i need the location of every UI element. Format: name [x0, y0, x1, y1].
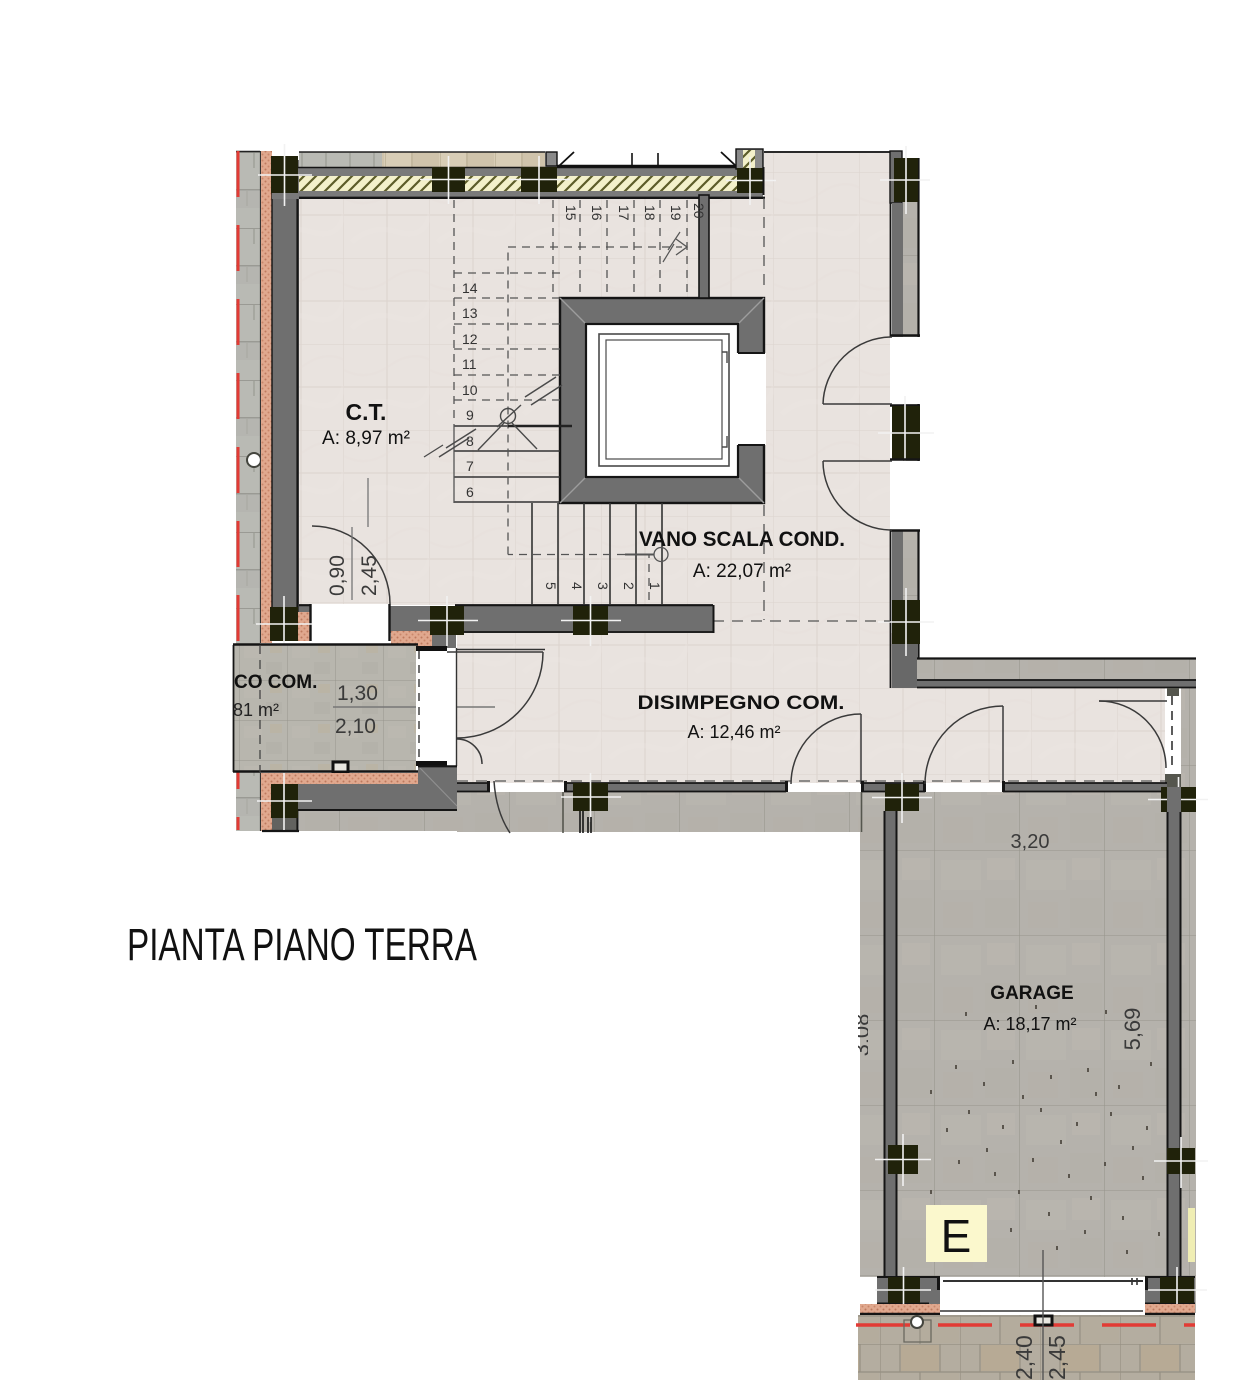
svg-text:11: 11 [462, 356, 477, 372]
svg-text:20: 20 [691, 203, 707, 219]
svg-text:5,69: 5,69 [1120, 1008, 1145, 1051]
svg-text:15: 15 [563, 205, 579, 221]
svg-text:1,30: 1,30 [337, 682, 378, 705]
svg-text:0,90: 0,90 [326, 555, 349, 596]
svg-text:A: 22,07 m²: A: 22,07 m² [693, 561, 791, 582]
svg-text:2,10: 2,10 [335, 715, 376, 738]
svg-text:17: 17 [616, 205, 632, 221]
svg-text:E: E [941, 1210, 972, 1262]
svg-text:3: 3 [595, 582, 611, 590]
svg-text:2,40: 2,40 [1011, 1335, 1037, 1380]
svg-text:A: 8,97 m²: A: 8,97 m² [322, 428, 410, 449]
svg-text:16: 16 [589, 205, 605, 221]
svg-text:9: 9 [466, 407, 474, 423]
svg-text:PIANTA PIANO TERRA: PIANTA PIANO TERRA [127, 919, 477, 970]
svg-text:2,45: 2,45 [1044, 1335, 1070, 1380]
svg-text:A: 18,17 m²: A: 18,17 m² [983, 1014, 1076, 1034]
svg-text:19: 19 [668, 205, 684, 221]
svg-text:CO COM.: CO COM. [234, 672, 317, 693]
svg-text:VANO SCALA COND.: VANO SCALA COND. [639, 528, 845, 551]
svg-text:DISIMPEGNO COM.: DISIMPEGNO COM. [638, 693, 845, 714]
svg-text:10: 10 [462, 382, 478, 398]
svg-text:12: 12 [462, 331, 478, 347]
svg-text:6: 6 [466, 484, 474, 500]
svg-text:13: 13 [462, 305, 478, 321]
svg-text:14: 14 [462, 280, 478, 296]
svg-text:81 m²: 81 m² [233, 700, 279, 720]
svg-text:GARAGE: GARAGE [990, 983, 1073, 1004]
svg-text:C.T.: C.T. [346, 399, 387, 425]
svg-text:7: 7 [466, 458, 474, 474]
svg-text:5: 5 [543, 582, 559, 590]
svg-text:4: 4 [569, 582, 585, 590]
svg-text:18: 18 [642, 205, 658, 221]
svg-text:2: 2 [621, 582, 637, 590]
svg-text:A: 12,46 m²: A: 12,46 m² [687, 722, 780, 742]
svg-text:3,20: 3,20 [1011, 831, 1050, 853]
svg-text:2,45: 2,45 [358, 555, 381, 596]
